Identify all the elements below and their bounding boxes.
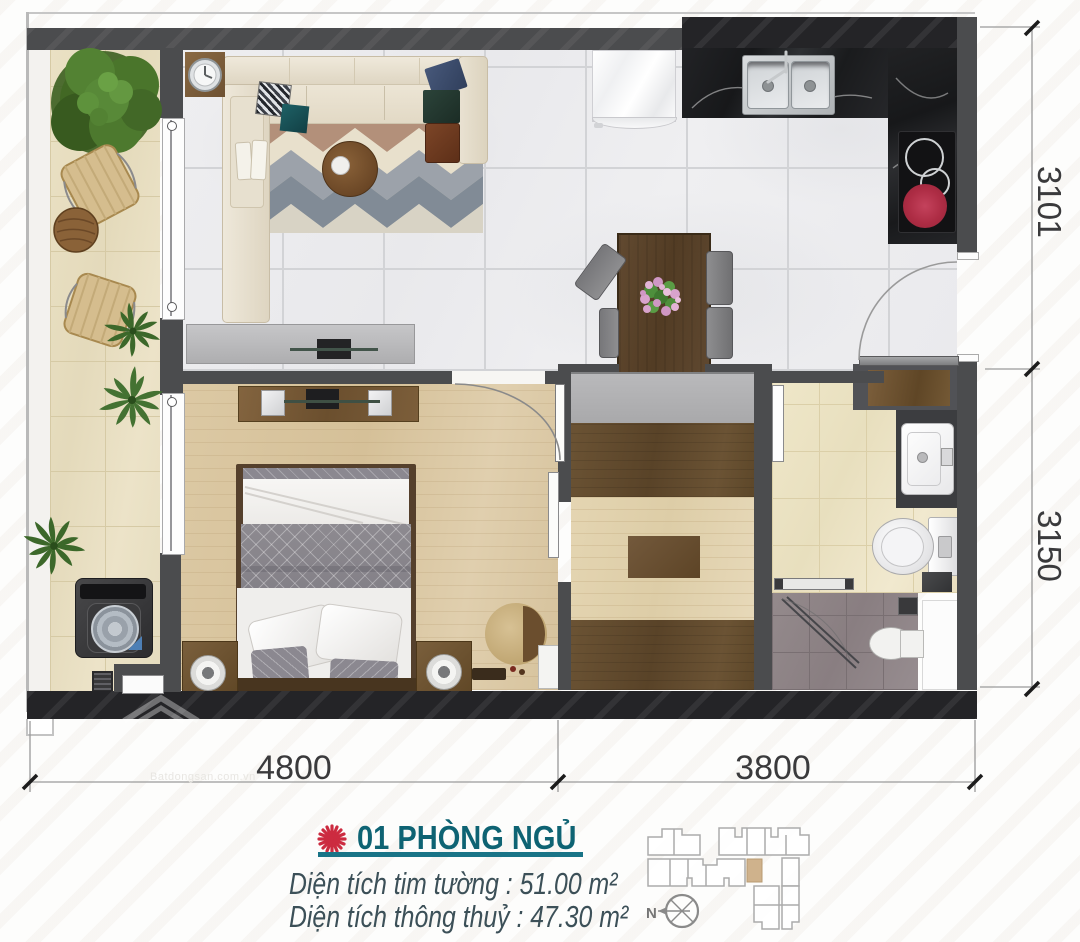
svg-text:N: N [646, 905, 657, 922]
svg-text:3150: 3150 [1031, 510, 1068, 582]
svg-text:3800: 3800 [735, 749, 811, 787]
svg-text:3101: 3101 [1031, 166, 1068, 237]
svg-text:4800: 4800 [256, 749, 332, 787]
